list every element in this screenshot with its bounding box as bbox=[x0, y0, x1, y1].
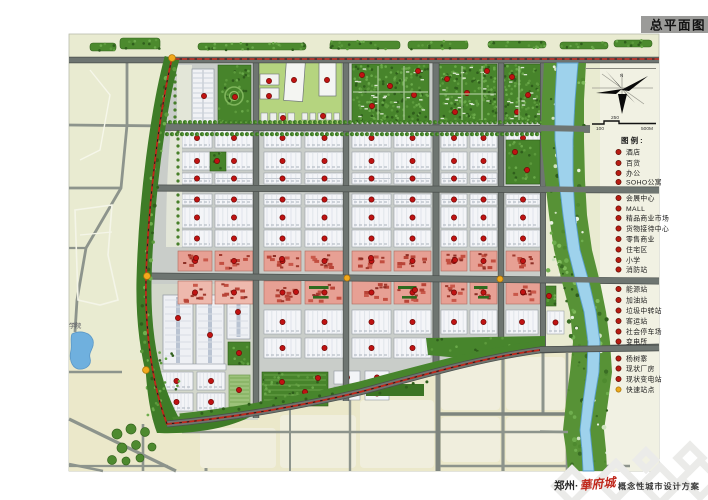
svg-text:MALL: MALL bbox=[626, 206, 645, 213]
svg-text:酒店: 酒店 bbox=[626, 147, 640, 156]
svg-text:N: N bbox=[620, 73, 623, 78]
svg-text:现状变电站: 现状变电站 bbox=[626, 374, 662, 383]
svg-text:100: 100 bbox=[596, 126, 604, 132]
svg-text:消防站: 消防站 bbox=[626, 265, 648, 274]
svg-text:郑州·: 郑州· bbox=[554, 479, 579, 492]
svg-text:图 例 :: 图 例 : bbox=[621, 135, 643, 145]
svg-text:变电所: 变电所 bbox=[626, 337, 648, 346]
svg-text:小学: 小学 bbox=[626, 255, 640, 264]
svg-text:办公: 办公 bbox=[626, 168, 640, 177]
svg-text:SOHO公寓: SOHO公寓 bbox=[626, 177, 662, 186]
svg-text:学院: 学院 bbox=[69, 322, 81, 330]
svg-text:概念性城市设计方案: 概念性城市设计方案 bbox=[618, 481, 700, 491]
svg-text:零售商业: 零售商业 bbox=[626, 234, 655, 243]
svg-text:客运站: 客运站 bbox=[626, 316, 648, 325]
svg-text:住宅区: 住宅区 bbox=[626, 245, 648, 254]
svg-text:现状厂房: 现状厂房 bbox=[626, 364, 655, 373]
svg-text:250: 250 bbox=[611, 115, 619, 121]
svg-text:百货: 百货 bbox=[626, 158, 640, 167]
svg-text:总平面图: 总平面图 bbox=[650, 18, 706, 33]
svg-text:垃圾中转站: 垃圾中转站 bbox=[626, 306, 662, 315]
svg-text:能源站: 能源站 bbox=[626, 284, 648, 293]
svg-text:社会停车场: 社会停车场 bbox=[626, 327, 662, 336]
svg-text:精品商业市场: 精品商业市场 bbox=[626, 213, 669, 222]
svg-text:500M: 500M bbox=[641, 126, 653, 132]
svg-text:会展中心: 会展中心 bbox=[626, 193, 655, 202]
svg-text:杨树寨: 杨树寨 bbox=[626, 354, 648, 363]
svg-text:快速站点: 快速站点 bbox=[626, 385, 655, 394]
svg-text:加油站: 加油站 bbox=[626, 295, 648, 304]
svg-text:货物接待中心: 货物接待中心 bbox=[626, 224, 669, 233]
